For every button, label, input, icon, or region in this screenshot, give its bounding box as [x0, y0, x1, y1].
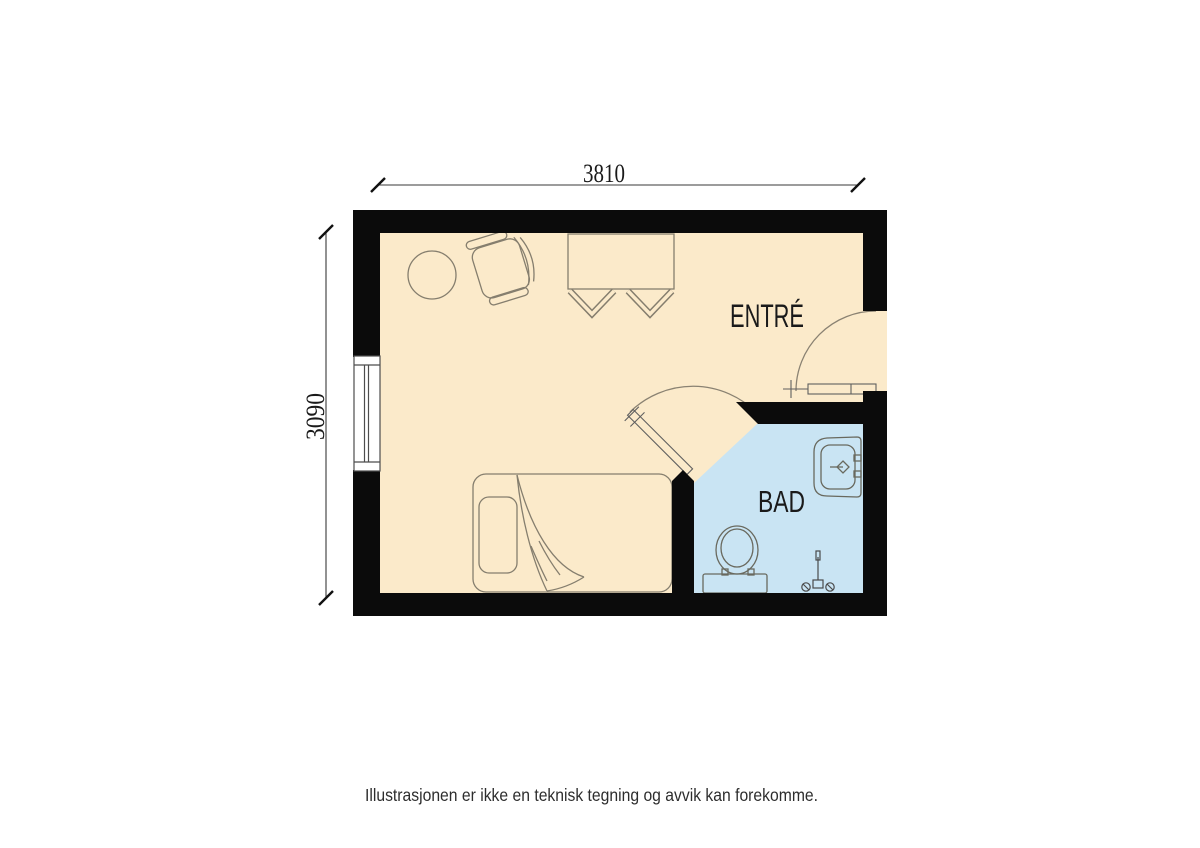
wall-right-lower: [863, 391, 887, 616]
dimension-top: 3810: [371, 159, 865, 192]
wall-top: [353, 210, 887, 233]
dimension-value-left: 3090: [301, 393, 330, 440]
floorplan-drawing: 3810 3090 ENTRÉ BAD Illustrasjonen er ik…: [0, 0, 1200, 848]
wall-left-upper: [353, 210, 380, 357]
window-frame: [354, 356, 380, 471]
floorplan-page: 3810 3090 ENTRÉ BAD Illustrasjonen er ik…: [0, 0, 1200, 848]
wall-bath-top: [736, 402, 887, 424]
wall-bath-left: [672, 470, 694, 616]
window: [354, 356, 380, 471]
wall-bottom: [353, 593, 887, 616]
dimension-left: 3090: [301, 225, 333, 605]
wall-right-upper: [863, 210, 887, 311]
floor-entry-door-opening: [863, 311, 887, 391]
dimension-value-top: 3810: [583, 159, 625, 188]
disclaimer-text: Illustrasjonen er ikke en teknisk tegnin…: [365, 785, 818, 805]
room-label-bad: BAD: [758, 484, 805, 519]
room-label-entre: ENTRÉ: [730, 298, 804, 334]
